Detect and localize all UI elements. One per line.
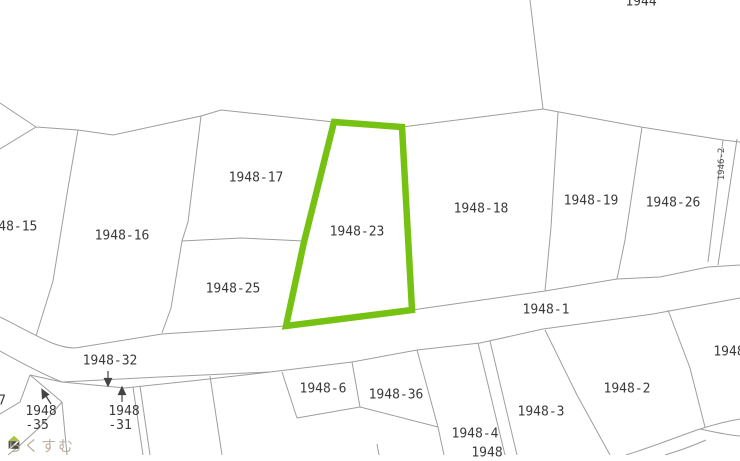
parcel-label-1948-15: 1948-15 bbox=[0, 220, 37, 235]
parcel-label-1948-17: 1948-17 bbox=[229, 171, 284, 186]
parcel-label-1946-2: 1946-2 bbox=[717, 148, 727, 181]
parcel-label-1948-26: 1948-26 bbox=[646, 196, 701, 211]
parcel-label-1948-32: 1948-32 bbox=[83, 354, 138, 369]
parcel-label-1948-23: 1948-23 bbox=[330, 225, 385, 240]
parcel-label-1948-2: 1948-2 bbox=[604, 382, 651, 397]
parcel-label-1948-36: 1948-36 bbox=[369, 388, 424, 403]
parcel-label-1948-19: 1948-19 bbox=[564, 194, 619, 209]
parcel-label-1948-18: 1948-18 bbox=[454, 202, 509, 217]
arrow-to-1948-31 bbox=[119, 387, 126, 402]
parcel-label-1948-1: 1948-1 bbox=[523, 303, 570, 318]
parcel-label-1948-31-line2: -31 bbox=[108, 419, 139, 433]
parcel-label-1948-31: 1948 -31 bbox=[108, 405, 139, 433]
parcel-label-1948-35: 1948 -35 bbox=[25, 405, 56, 433]
parcel-label-1948-4: 1948-4 bbox=[452, 427, 499, 442]
parcel-label-1948-35-line2: -35 bbox=[25, 419, 56, 433]
parcel-label-1948-bottom: 1948 bbox=[471, 446, 502, 461]
parcel-label-1948-6: 1948-6 bbox=[300, 382, 347, 397]
parcel-label-1948-35-line1: 1948 bbox=[25, 405, 56, 419]
parcel-label-1948-25: 1948-25 bbox=[206, 282, 261, 297]
parcel-label-1948-right: 1948 bbox=[713, 345, 740, 360]
parcel-label-1944: 1944 bbox=[625, 0, 656, 10]
watermark: らくすむ bbox=[7, 435, 75, 455]
parcel-label-1948-31-line1: 1948 bbox=[108, 405, 139, 419]
arrow-to-1948-32 bbox=[105, 371, 112, 386]
parcel-label-1948-3: 1948-3 bbox=[518, 405, 565, 420]
watermark-brand-text: らくすむ bbox=[7, 435, 75, 456]
parcel-label-left-partial: 7 bbox=[0, 394, 6, 409]
parcel-label-1948-16: 1948-16 bbox=[95, 229, 150, 244]
cadastral-map-canvas[interactable]: 1944 1948-15 1948-16 1948-17 1948-25 194… bbox=[0, 0, 740, 455]
